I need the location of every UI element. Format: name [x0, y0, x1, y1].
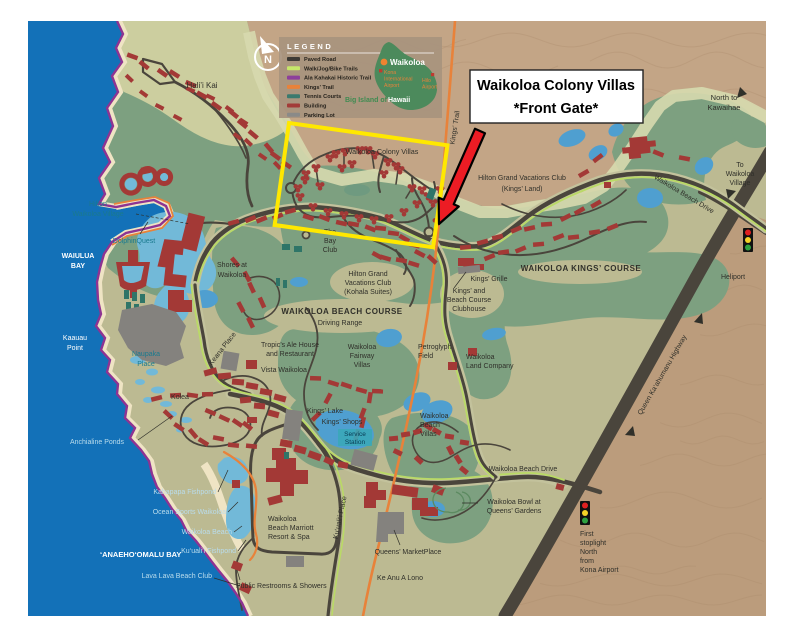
svg-text:Waikoloa: Waikoloa	[390, 58, 425, 67]
svg-text:stoplight: stoplight	[580, 540, 606, 547]
svg-text:North to: North to	[711, 93, 738, 102]
svg-text:Tennis Courts: Tennis Courts	[304, 94, 341, 100]
svg-text:Kings’ Shops: Kings’ Shops	[322, 419, 363, 426]
svg-text:Heliport: Heliport	[721, 274, 745, 281]
svg-text:Petroglyph: Petroglyph	[418, 344, 452, 351]
svg-text:Club: Club	[323, 247, 338, 254]
svg-text:Waikoloa: Waikoloa	[466, 354, 495, 361]
svg-text:Station: Station	[345, 439, 366, 446]
svg-text:Point: Point	[67, 345, 83, 352]
svg-text:Airport: Airport	[384, 83, 400, 89]
svg-text:Waikoloa: Waikoloa	[420, 413, 449, 420]
svg-text:Resort & Spa: Resort & Spa	[268, 534, 310, 541]
svg-text:Land Company: Land Company	[466, 363, 514, 370]
svg-text:Vista Waikoloa: Vista Waikoloa	[261, 367, 307, 374]
svg-text:Ala Kahakai Historic Trail: Ala Kahakai Historic Trail	[304, 76, 372, 82]
svg-text:Parking Lot: Parking Lot	[304, 113, 335, 119]
svg-text:DolphinQuest: DolphinQuest	[113, 238, 155, 245]
svg-text:WAIKOLOA BEACH COURSE: WAIKOLOA BEACH COURSE	[281, 307, 402, 316]
svg-text:WAIKOLOA KINGS’ COURSE: WAIKOLOA KINGS’ COURSE	[521, 264, 642, 273]
svg-text:Hawaii: Hawaii	[388, 97, 410, 104]
svg-text:Hilton Grand: Hilton Grand	[348, 271, 387, 278]
svg-text:Waikoloa: Waikoloa	[268, 516, 297, 523]
svg-text:LEGEND: LEGEND	[287, 42, 333, 51]
svg-text:Kolea: Kolea	[171, 394, 189, 401]
svg-text:Fairway: Fairway	[350, 353, 375, 360]
svg-text:Walk/Jog/Bike Trails: Walk/Jog/Bike Trails	[304, 66, 358, 72]
svg-text:North: North	[580, 549, 597, 556]
svg-text:Queens’ Gardens: Queens’ Gardens	[487, 508, 542, 515]
svg-text:Waikoloa Beach: Waikoloa Beach	[182, 529, 232, 536]
svg-text:Hilton: Hilton	[89, 201, 107, 208]
svg-text:Vacations Club: Vacations Club	[345, 280, 392, 287]
svg-text:Hilton Grand Vacations Club: Hilton Grand Vacations Club	[478, 175, 566, 182]
svg-text:Hali’i Kai: Hali’i Kai	[186, 81, 217, 90]
svg-text:Villas: Villas	[420, 431, 437, 438]
svg-text:Waikoloa: Waikoloa	[348, 344, 377, 351]
svg-text:and Restaurant: and Restaurant	[266, 351, 314, 358]
svg-text:Driving Range: Driving Range	[318, 320, 362, 327]
svg-text:To: To	[736, 162, 744, 169]
svg-text:First: First	[580, 531, 594, 538]
svg-text:Beach Course: Beach Course	[447, 297, 491, 304]
svg-text:Kings’ and: Kings’ and	[453, 288, 486, 295]
svg-text:Villas: Villas	[354, 362, 371, 369]
svg-text:International: International	[384, 77, 413, 83]
svg-text:Public Restrooms & Showers: Public Restrooms & Showers	[236, 583, 327, 590]
svg-text:Beach: Beach	[420, 422, 440, 429]
svg-text:Kona Airport: Kona Airport	[580, 567, 619, 574]
svg-text:Place: Place	[137, 361, 155, 368]
svg-text:Service: Service	[344, 431, 366, 438]
svg-text:Big Island of: Big Island of	[345, 97, 388, 104]
svg-text:BAY: BAY	[71, 263, 85, 270]
svg-text:Ke Anu A Lono: Ke Anu A Lono	[377, 575, 423, 582]
svg-text:Waikoloa: Waikoloa	[726, 171, 755, 178]
svg-text:Kawaihae: Kawaihae	[708, 103, 741, 112]
svg-text:Clubhouse: Clubhouse	[452, 306, 486, 313]
svg-text:Tropic’s Ale House: Tropic’s Ale House	[261, 342, 319, 349]
svg-text:Beach Marriott: Beach Marriott	[268, 525, 314, 532]
svg-text:Hilo: Hilo	[422, 78, 431, 84]
svg-text:Waikoloa Colony Villas: Waikoloa Colony Villas	[346, 147, 419, 156]
svg-text:*Front Gate*: *Front Gate*	[514, 101, 599, 117]
svg-text:(Kings’ Land): (Kings’ Land)	[502, 186, 543, 193]
svg-text:Anchialine Ponds: Anchialine Ponds	[70, 439, 125, 446]
svg-text:‘ANAEHO‘OMALU BAY: ‘ANAEHO‘OMALU BAY	[100, 550, 181, 559]
svg-text:Waikoloa Village: Waikoloa Village	[72, 211, 123, 218]
svg-text:Kings’ Trail: Kings’ Trail	[304, 85, 334, 91]
svg-text:Airport: Airport	[422, 85, 438, 91]
svg-text:from: from	[580, 558, 594, 565]
svg-text:Kaauau: Kaauau	[63, 335, 87, 342]
svg-text:Naupaka: Naupaka	[132, 351, 160, 358]
svg-text:WAIULUA: WAIULUA	[62, 253, 95, 260]
svg-text:Field: Field	[418, 353, 433, 360]
svg-text:Kahapapa Fishpond: Kahapapa Fishpond	[153, 489, 216, 496]
svg-text:Queens’ MarketPlace: Queens’ MarketPlace	[375, 549, 442, 556]
svg-text:Building: Building	[304, 104, 327, 110]
svg-text:Paved Road: Paved Road	[304, 57, 337, 63]
svg-text:(Kohala Suites): (Kohala Suites)	[344, 289, 392, 296]
svg-text:Waikoloa Bowl at: Waikoloa Bowl at	[487, 499, 540, 506]
svg-text:Kings’ Grille: Kings’ Grille	[470, 276, 507, 283]
svg-text:Ku‘uali‘i Fishpond: Ku‘uali‘i Fishpond	[181, 548, 236, 555]
svg-text:Village: Village	[730, 180, 751, 187]
svg-text:Bay: Bay	[324, 238, 337, 245]
svg-text:Lava Lava Beach Club: Lava Lava Beach Club	[142, 573, 213, 580]
svg-text:Kings’ Lake: Kings’ Lake	[307, 408, 343, 415]
svg-text:Waikoloa: Waikoloa	[218, 272, 247, 279]
svg-text:Shores at: Shores at	[217, 262, 247, 269]
svg-text:Ocean Sports Waikoloa: Ocean Sports Waikoloa	[153, 509, 226, 516]
svg-text:Waikoloa Beach Drive: Waikoloa Beach Drive	[489, 466, 558, 473]
svg-text:N: N	[264, 54, 272, 66]
svg-text:Waikoloa Colony Villas: Waikoloa Colony Villas	[477, 78, 635, 94]
svg-text:Kona: Kona	[384, 70, 396, 76]
